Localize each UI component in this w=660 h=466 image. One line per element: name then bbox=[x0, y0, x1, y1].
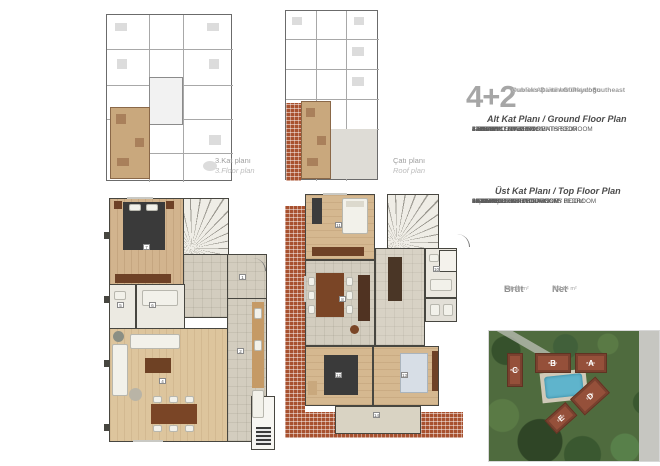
room-number-marker: 1 bbox=[239, 274, 246, 280]
net-value: 162,94 m² bbox=[552, 285, 577, 294]
room-number-marker: 11 bbox=[335, 222, 342, 228]
room-number-marker: 4 bbox=[159, 378, 166, 384]
gross-value: 236,36 m² bbox=[504, 285, 529, 294]
mini-unit-furniture bbox=[117, 158, 129, 166]
room-number-marker: 10 bbox=[433, 266, 440, 272]
room-number-marker: 7 bbox=[143, 244, 150, 250]
mini-plan-1-label-en: 3.Floor plan bbox=[215, 166, 255, 176]
room-number-marker: 6 bbox=[149, 302, 156, 308]
building-blocks: A BLOK B BLOK C BLOK D BLOK bbox=[489, 331, 659, 461]
mini-furniture bbox=[352, 47, 364, 56]
room-number-marker: 5 bbox=[117, 302, 124, 308]
mini-wall bbox=[149, 153, 233, 154]
apartment-type-number: 4+2 bbox=[466, 82, 516, 112]
room-area: 5.49 m² bbox=[472, 198, 493, 206]
mini-plan-1-label-tr: 3.Kat planı bbox=[215, 156, 251, 166]
mini-brick-roof bbox=[286, 103, 301, 181]
room-number-marker: 13 bbox=[401, 372, 408, 378]
mini-furniture bbox=[207, 23, 219, 31]
mini-plan-roof bbox=[285, 10, 378, 180]
ground-floor-heading: Alt Kat Planı / Ground Floor Plan bbox=[487, 114, 627, 124]
top-plan-markers: 81011121314 bbox=[283, 186, 465, 440]
mini-furniture bbox=[209, 59, 219, 69]
room-number-marker: 12 bbox=[335, 372, 342, 378]
mini-plan-1-label: 3.Kat planı 3.Floor plan bbox=[215, 156, 251, 166]
building-block: C BLOK bbox=[507, 353, 523, 387]
mini-furniture bbox=[115, 23, 127, 31]
building-block: B BLOK bbox=[535, 353, 571, 373]
mini-plan-3rd-floor bbox=[106, 14, 232, 181]
top-floor-plan: 81011121314 bbox=[283, 186, 465, 440]
mini-furniture bbox=[292, 17, 302, 25]
building-block: A BLOK bbox=[575, 353, 607, 373]
mini-stair-core bbox=[149, 77, 183, 125]
mini-highlighted-unit bbox=[301, 101, 331, 179]
header-line-sub: Çatı Dublexli / Roof Dublex bbox=[512, 87, 589, 95]
building-block: E BLOK bbox=[545, 402, 578, 434]
room-number-marker: 2 bbox=[237, 348, 244, 354]
mini-wall bbox=[286, 69, 379, 70]
mini-unit-furniture bbox=[307, 158, 318, 166]
mini-plan-2-label-en: Roof plan bbox=[393, 166, 425, 176]
top-floor-heading: Üst Kat Planı / Top Floor Plan bbox=[495, 186, 621, 196]
block-sublabel: BLOK bbox=[586, 361, 595, 365]
brochure-page: 3.Kat planı 3.Floor plan Çatı planı Roof… bbox=[0, 0, 660, 466]
ground-floor-plan: 124567 bbox=[93, 188, 275, 458]
mini-unit-furniture bbox=[116, 114, 126, 124]
mini-furniture bbox=[209, 135, 221, 145]
mini-wall bbox=[286, 99, 379, 100]
mini-highlighted-unit bbox=[110, 107, 150, 179]
room-area: 14.59 m² bbox=[472, 126, 497, 134]
mini-wall bbox=[107, 49, 233, 50]
site-plan-aerial: A BLOK B BLOK C BLOK D BLOK bbox=[488, 330, 660, 462]
mini-unit-furniture bbox=[306, 108, 315, 117]
mini-furniture bbox=[354, 17, 364, 25]
mini-unit-furniture bbox=[135, 138, 144, 147]
block-sublabel: BLOK bbox=[510, 368, 519, 372]
mini-roof-terrace bbox=[328, 129, 377, 179]
mini-furniture bbox=[117, 59, 127, 69]
room-number-marker: 14 bbox=[373, 412, 380, 418]
mini-plan-2-label: Çatı planı Roof plan bbox=[393, 156, 425, 166]
mini-wall bbox=[286, 39, 379, 40]
room-number-marker: 8 bbox=[339, 296, 346, 302]
ground-plan-markers: 124567 bbox=[93, 188, 275, 458]
mini-wall bbox=[183, 15, 184, 182]
block-sublabel: BLOK bbox=[548, 361, 557, 365]
mini-furniture bbox=[352, 77, 364, 86]
mini-unit-furniture bbox=[317, 136, 326, 145]
building-block: D BLOK bbox=[570, 376, 610, 415]
mini-plan-2-label-tr: Çatı planı bbox=[393, 156, 425, 166]
